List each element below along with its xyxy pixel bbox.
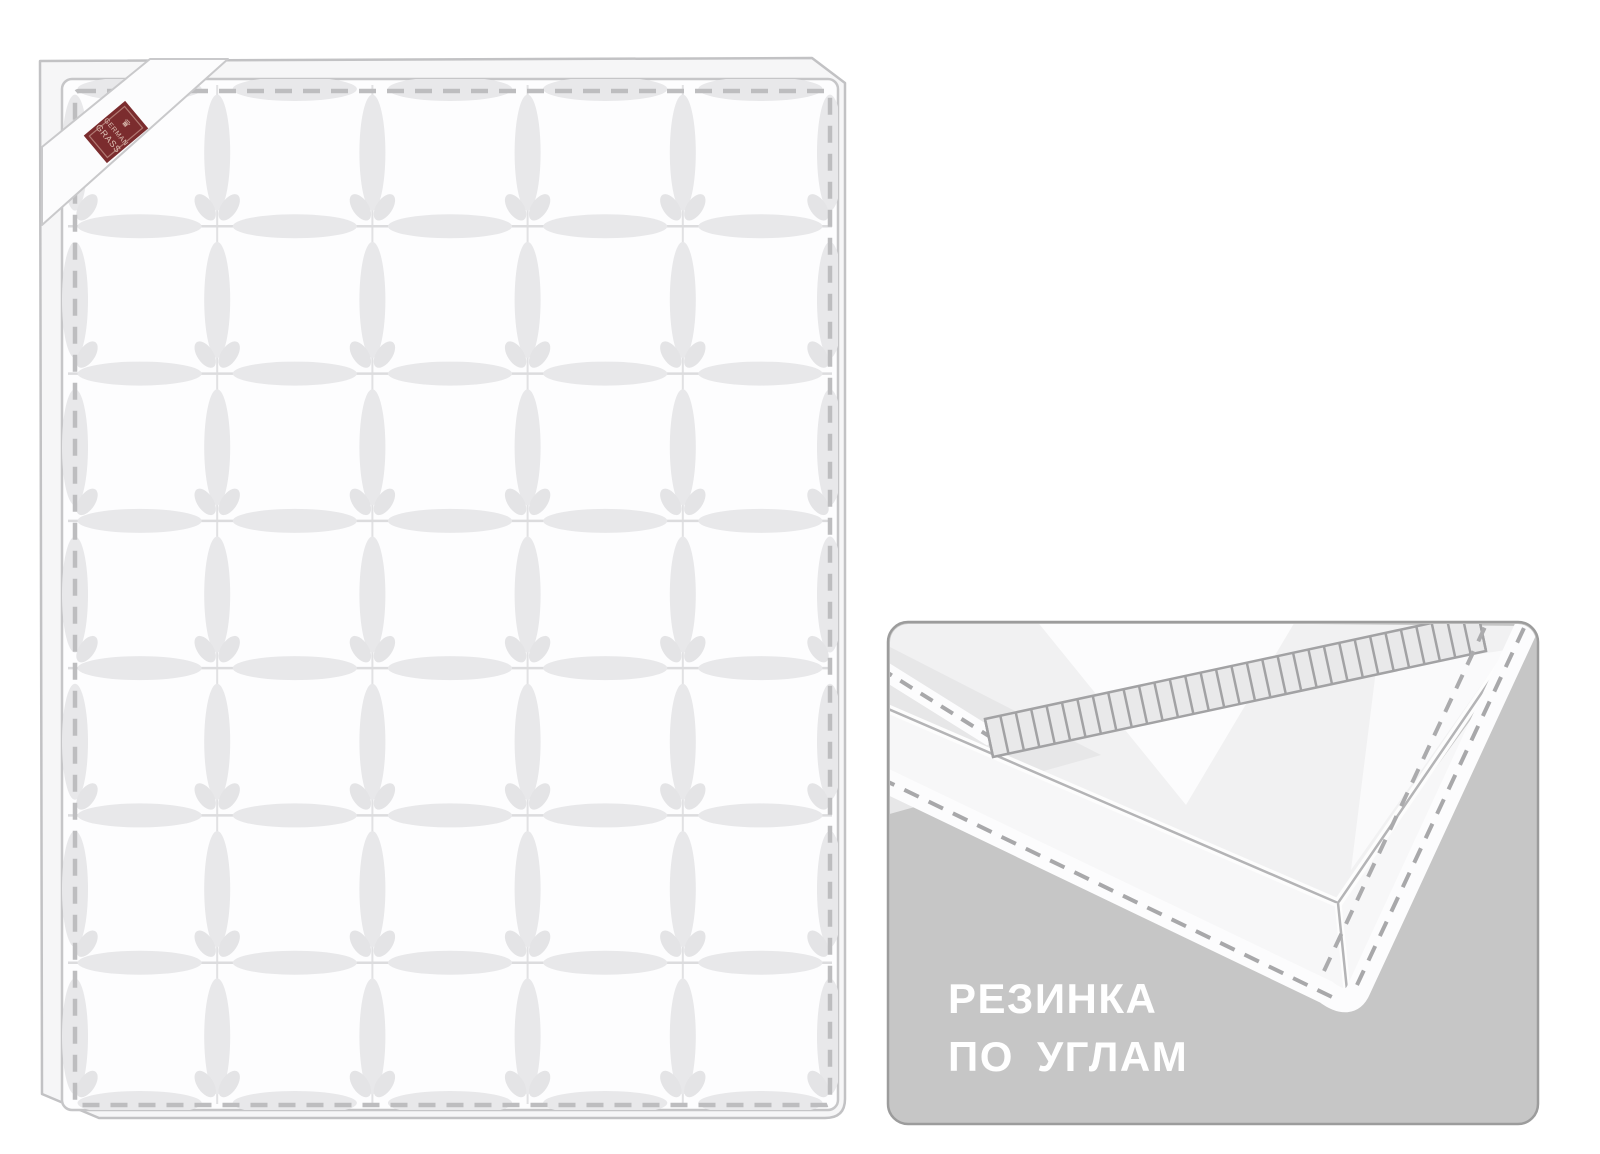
quilt-lens-vertical [359, 684, 385, 800]
corner-detail-inset: РЕЗИНКА ПО УГЛАМ [886, 620, 1540, 1126]
quilt-lens-horizontal [233, 803, 357, 827]
quilt-lens-horizontal [388, 362, 512, 386]
quilt-lens-vertical [515, 389, 541, 505]
quilt-lens-horizontal [543, 951, 667, 975]
quilt-lens-vertical [359, 242, 385, 358]
quilt-lens-vertical [359, 537, 385, 653]
quilt-lens-horizontal [543, 656, 667, 680]
quilt-lens-horizontal [78, 509, 202, 533]
quilt-lens-horizontal [543, 509, 667, 533]
quilt-lens-vertical [204, 684, 230, 800]
quilt-lens-vertical [359, 389, 385, 505]
quilt-lens-horizontal [698, 656, 822, 680]
quilt-lens-vertical [670, 684, 696, 800]
quilt-lens-vertical [515, 95, 541, 211]
quilt-lens-horizontal [233, 214, 357, 238]
quilt-lens-horizontal [233, 509, 357, 533]
quilt-lens-vertical [515, 242, 541, 358]
quilt-lens-vertical [515, 831, 541, 947]
mattress-pad-illustration: ♛ GERMAN GRASS [33, 53, 848, 1125]
quilt-lens-horizontal [78, 951, 202, 975]
quilt-lens-vertical [204, 537, 230, 653]
quilt-lens-horizontal [698, 951, 822, 975]
quilt-lens-vertical [515, 684, 541, 800]
quilt-lens-horizontal [78, 214, 202, 238]
quilt-lens-horizontal [543, 803, 667, 827]
quilt-lens-horizontal [233, 951, 357, 975]
quilt-lens-horizontal [698, 509, 822, 533]
quilt-lens-horizontal [388, 509, 512, 533]
quilt-lens-horizontal [388, 214, 512, 238]
quilt-lens-horizontal [698, 803, 822, 827]
quilt-lens-vertical [670, 537, 696, 653]
quilt-lens-horizontal [698, 362, 822, 386]
quilt-lens-horizontal [388, 951, 512, 975]
quilt-lens-horizontal [388, 656, 512, 680]
inset-caption-line1: РЕЗИНКА [948, 975, 1157, 1022]
inset-caption-line2: ПО УГЛАМ [948, 1033, 1188, 1080]
quilt-lens-horizontal [233, 656, 357, 680]
quilt-lens-vertical [204, 389, 230, 505]
quilt-lens-vertical [670, 389, 696, 505]
quilt-lens-horizontal [543, 214, 667, 238]
quilt-lens-horizontal [388, 803, 512, 827]
quilt-lens-vertical [670, 95, 696, 211]
quilt-lens-horizontal [698, 214, 822, 238]
product-illustration: ♛ GERMAN GRASS [0, 0, 1600, 1154]
quilt-lens-vertical [670, 242, 696, 358]
quilt-lens-horizontal [233, 362, 357, 386]
quilt-lens-horizontal [78, 656, 202, 680]
quilt-lens-vertical [204, 242, 230, 358]
quilt-lens-vertical [359, 95, 385, 211]
quilt-lens-horizontal [543, 362, 667, 386]
quilt-lens-horizontal [78, 803, 202, 827]
quilt-lens-horizontal [78, 362, 202, 386]
quilt-lens-vertical [515, 537, 541, 653]
quilt-lens-vertical [359, 831, 385, 947]
quilt-lens-vertical [670, 831, 696, 947]
quilt-lens-vertical [204, 95, 230, 211]
quilt-lens-vertical [204, 831, 230, 947]
